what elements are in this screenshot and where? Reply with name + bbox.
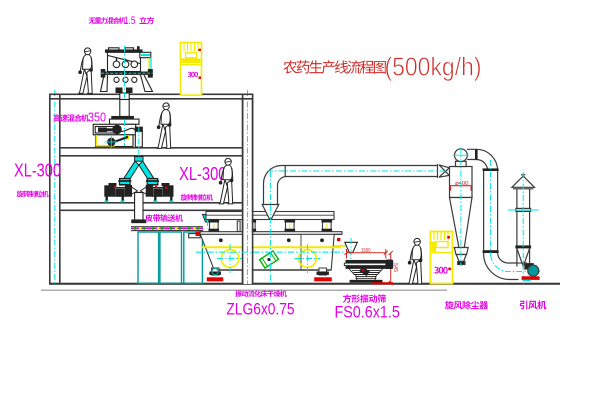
svg-text:FS0.6x1.5: FS0.6x1.5 bbox=[335, 304, 400, 322]
svg-text:XL-300: XL-300 bbox=[179, 164, 227, 184]
svg-text:ZLG6x0.75: ZLG6x0.75 bbox=[226, 301, 294, 319]
svg-text:1500: 1500 bbox=[361, 248, 371, 254]
svg-text:⌀400: ⌀400 bbox=[455, 181, 469, 187]
svg-text:350: 350 bbox=[88, 110, 106, 125]
svg-text:XL-300: XL-300 bbox=[14, 161, 61, 181]
svg-text:(500kg/h): (500kg/h) bbox=[385, 52, 482, 82]
svg-text:1.5: 1.5 bbox=[124, 15, 135, 27]
